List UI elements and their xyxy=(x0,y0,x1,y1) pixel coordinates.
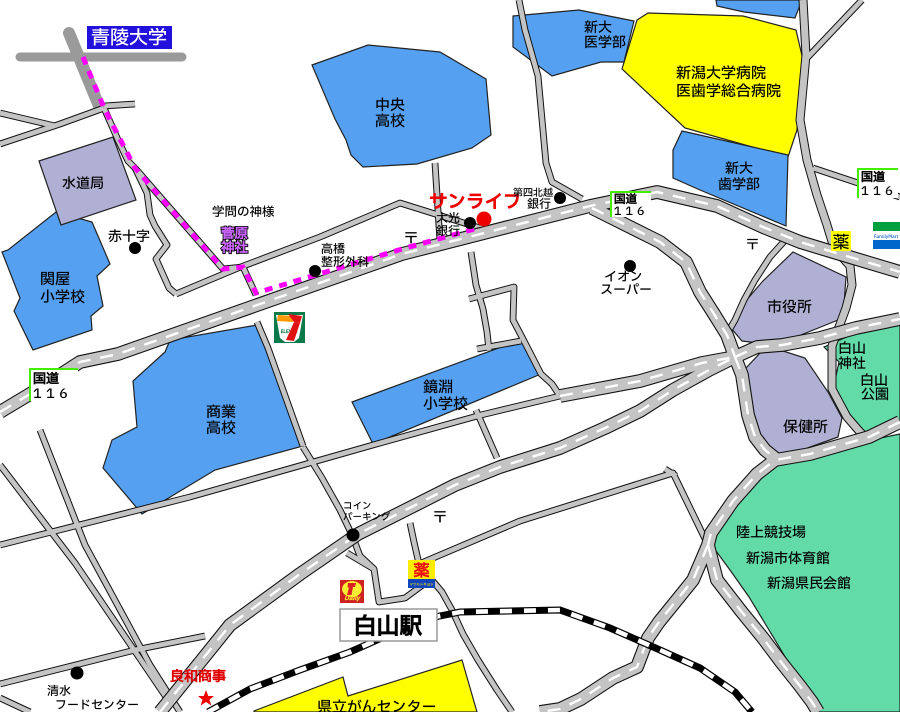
svg-text:市役所: 市役所 xyxy=(767,296,812,319)
svg-text:歯学部: 歯学部 xyxy=(718,175,760,196)
svg-text:医歯学総合病院: 医歯学総合病院 xyxy=(676,80,781,103)
svg-text:新潟県民会館: 新潟県民会館 xyxy=(767,574,851,595)
svg-text:陸上競技場: 陸上競技場 xyxy=(736,523,806,544)
svg-text:１１６: １１６ xyxy=(612,204,647,221)
svg-text:県立がんセンター: 県立がんセンター xyxy=(317,696,436,712)
svg-text:マツモトキヨシ: マツモトキヨシ xyxy=(410,583,435,588)
svg-text:〒: 〒 xyxy=(746,235,759,255)
svg-text:高校: 高校 xyxy=(206,417,236,440)
svg-text:整形外科: 整形外科 xyxy=(321,254,369,272)
svg-text:スーパー: スーパー xyxy=(600,280,652,300)
svg-text:水道局: 水道局 xyxy=(62,174,104,195)
svg-text:高校: 高校 xyxy=(375,110,405,133)
svg-text:FamilyMart: FamilyMart xyxy=(874,233,898,240)
svg-text:銀行: 銀行 xyxy=(436,223,460,241)
svg-text:小学校: 小学校 xyxy=(40,286,85,309)
svg-text:小学校: 小学校 xyxy=(423,393,468,416)
svg-text:赤十字: 赤十字 xyxy=(108,227,150,248)
svg-text:薬: 薬 xyxy=(833,231,850,256)
svg-text:パーキング: パーキング xyxy=(343,511,391,525)
svg-text:銀行: 銀行 xyxy=(527,196,551,214)
svg-text:保健所: 保健所 xyxy=(783,416,828,439)
svg-text:〒: 〒 xyxy=(433,508,447,529)
svg-text:青陵大学: 青陵大学 xyxy=(91,25,167,53)
svg-text:フードセンター: フードセンター xyxy=(55,697,139,712)
svg-text:良和商事: 良和商事 xyxy=(170,667,226,688)
svg-text:医学部: 医学部 xyxy=(584,33,626,54)
svg-text:１１６: １１６ xyxy=(859,183,895,201)
svg-text:〒: 〒 xyxy=(404,229,418,250)
svg-text:１１６: １１６ xyxy=(31,384,70,404)
svg-text:神社: 神社 xyxy=(221,238,248,258)
svg-text:学問の神様: 学問の神様 xyxy=(212,203,275,222)
svg-text:白山駅: 白山駅 xyxy=(354,611,423,645)
svg-text:Daily: Daily xyxy=(344,593,361,603)
svg-text:公園: 公園 xyxy=(861,385,889,406)
svg-text:新潟市体育館: 新潟市体育館 xyxy=(746,549,830,570)
